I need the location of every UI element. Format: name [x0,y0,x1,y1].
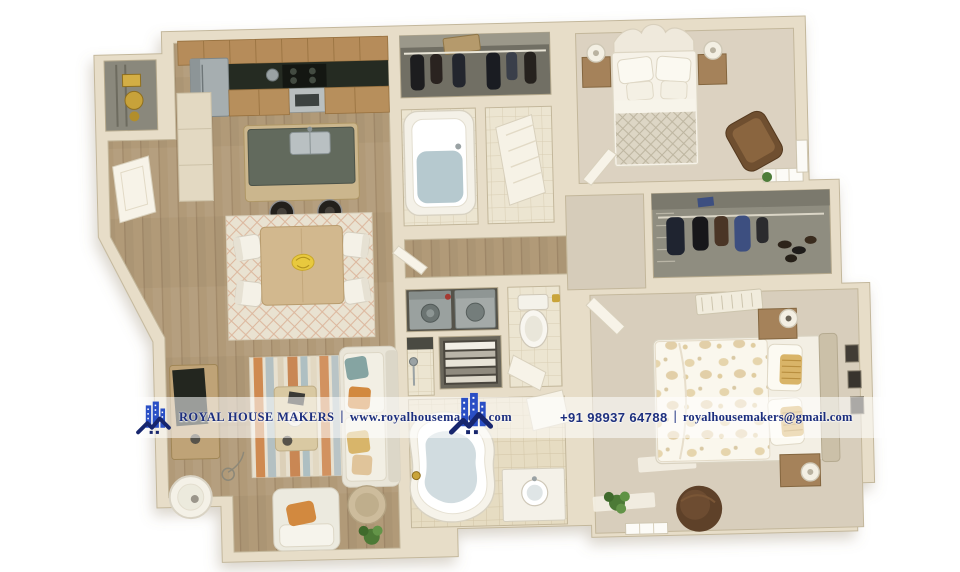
window [626,522,668,534]
pantry-cabinet [177,93,214,202]
bed-1 [611,23,698,166]
kitchen-island [244,123,360,202]
phone-number: +91 98937 64788 [560,410,668,425]
shower-head [409,358,417,366]
floor-plan-svg [0,0,960,572]
watermark-banner: ROYAL HOUSE MAKERS | www.royalhousemaker… [0,397,960,438]
dining-chair [234,280,263,307]
cooktop [282,64,327,88]
brand-name: ROYAL HOUSE MAKERS [179,410,334,425]
hallway-floor [405,236,568,278]
pillow-teal [344,355,369,380]
separator: | [340,409,343,425]
linen-closet [443,340,498,385]
building [93,15,876,566]
tub-faucet-gold [412,472,420,480]
pot [266,69,278,81]
bath-water [416,150,463,203]
round-basket [169,476,212,519]
bathroom-1 [403,110,476,216]
tp-roll [552,294,560,302]
watermark-right-text: +91 98937 64788 | royalhousemakers@gmail… [560,397,853,438]
living-room [166,346,402,554]
brand-logo-icon [446,391,496,438]
email-address: royalhousemakers@gmail.com [683,410,853,425]
dining-chair [233,234,263,262]
dining-chair [341,232,370,259]
hallway-b-floor [565,194,645,290]
base-cabinets-right [325,86,390,114]
separator: | [674,409,677,425]
shelf-item-blue [697,197,714,208]
water-heater [122,74,140,86]
side-table [348,485,387,524]
pillow [617,56,654,84]
armchair [273,488,340,552]
dining-chair [342,277,372,305]
entry-door [112,156,156,223]
window [796,140,808,172]
floor-plan-image: ROYAL HOUSE MAKERS | www.royalhousemaker… [0,0,960,572]
vanity [502,468,565,521]
toilet-tank [518,294,548,310]
dining-area [226,213,375,341]
brand-logo-icon [133,400,174,437]
pillow [656,56,692,83]
gold-striped-pillow [779,354,803,386]
pillow-tan [351,454,372,475]
